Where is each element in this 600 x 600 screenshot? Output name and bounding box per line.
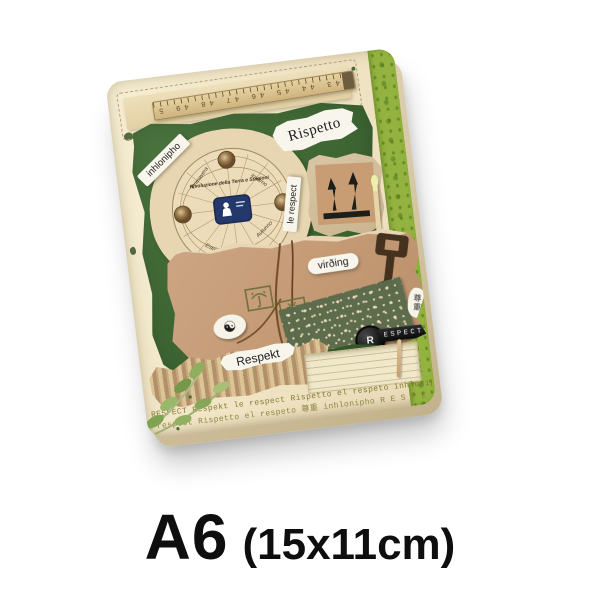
umbrella-icon — [251, 291, 268, 308]
caption: A6 (15x11cm) — [0, 500, 600, 574]
ruler-hinge — [341, 71, 355, 90]
leaf-branch — [126, 334, 255, 438]
keep-dry-stamp — [244, 285, 274, 312]
label-virding: virðing — [307, 252, 360, 275]
product-photo: 43 44 45 46 47 48 49 50 — [0, 0, 600, 600]
this-side-up-icon — [315, 162, 376, 225]
paint-splatter — [129, 247, 136, 256]
wooden-stick — [397, 339, 402, 377]
pictogram-badge — [213, 194, 252, 224]
caption-size: A6 — [145, 500, 229, 574]
notebook-cover: 43 44 45 46 47 48 49 50 — [105, 48, 436, 439]
caption-dimensions: (15x11cm) — [242, 520, 455, 570]
